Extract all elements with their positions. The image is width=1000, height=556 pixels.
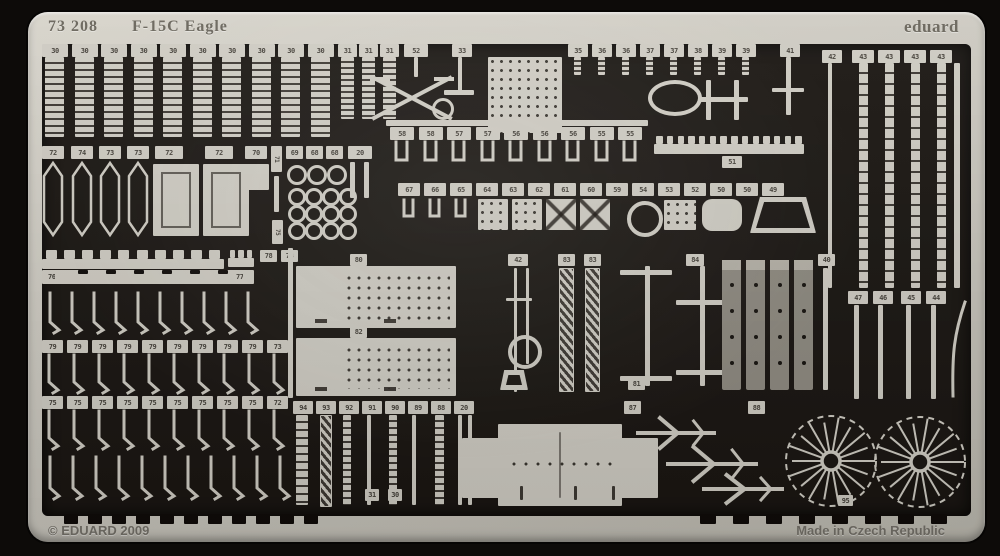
part-number-tab: 36: [592, 44, 612, 57]
ladder-strip-part: [45, 57, 64, 137]
comb-tooth: [46, 250, 57, 259]
frame-tab-stub: [88, 514, 102, 524]
hook-part: [92, 456, 107, 500]
pylon-hole: [802, 335, 806, 339]
strip-part: [364, 162, 369, 198]
part-number-tab: 44: [926, 291, 946, 304]
part-number-tab: 65: [450, 183, 472, 196]
panel-part: [702, 199, 742, 231]
ladder-strip-part: [574, 57, 581, 75]
part-number-tab: 40: [818, 254, 835, 266]
plate-rivet-dots: [344, 273, 450, 320]
strip-part: [854, 305, 859, 399]
part-number-tab: 30: [308, 44, 334, 57]
part-number-tab: 75: [167, 396, 188, 409]
part-number-tab: 57: [447, 127, 471, 140]
part-number-tab: 30: [42, 44, 68, 57]
hook-part: [69, 456, 84, 500]
hook-part: [120, 410, 135, 450]
hook-part: [115, 456, 130, 500]
part-number-tab: 39: [736, 44, 756, 57]
comb-tooth: [688, 136, 694, 144]
pylon-hole: [802, 361, 806, 365]
comb-tooth: [247, 250, 252, 258]
pylon-hole: [730, 335, 734, 339]
part-number-tab: 43: [852, 50, 874, 63]
panel-part: [243, 164, 269, 190]
strip-part: [414, 57, 418, 77]
part-number-tab: 37: [640, 44, 660, 57]
hook-part: [270, 354, 285, 394]
ring-part: [339, 205, 357, 223]
part-number-tab: 66: [424, 183, 446, 196]
part-number-tab: 74: [71, 146, 93, 159]
part-number-tab: 81: [628, 378, 645, 390]
part-number-tab: 52: [404, 44, 428, 57]
panel-part: [478, 199, 508, 230]
frame-tab-stub: [160, 514, 174, 524]
frame-tab-stub: [208, 514, 222, 524]
frame-tab-stub: [64, 514, 78, 524]
part-number-tab: 50: [710, 183, 732, 196]
hook-part: [195, 410, 210, 450]
part-number-tab: 58: [419, 127, 443, 140]
plate-etch-dots: [508, 461, 612, 467]
u-clip-part: [537, 141, 552, 163]
pylon-strip-part: [770, 260, 789, 390]
part-number-tab: 30: [219, 44, 245, 57]
hook-part: [222, 292, 237, 334]
part-number-tab: 75: [42, 396, 63, 409]
ring-part: [288, 222, 306, 240]
pylon-hole: [754, 283, 758, 287]
part-number-tab: 45: [901, 291, 921, 304]
pylon-hole: [778, 335, 782, 339]
strip-part: [444, 90, 474, 95]
comb-tooth: [774, 136, 780, 144]
fairing-part: [500, 370, 528, 390]
pylon-hole: [802, 283, 806, 287]
part-number-tab: 90: [385, 401, 405, 414]
zigzag-strip-part: [320, 415, 332, 507]
canopy-frame-part: [71, 162, 93, 236]
part-number-tab: 88: [748, 401, 765, 414]
hook-part: [184, 456, 199, 500]
comb-tooth: [209, 250, 220, 259]
part-number-tab: 79: [217, 340, 238, 353]
u-clip-part: [508, 141, 523, 163]
u-clip-part: [451, 141, 466, 163]
part-number-tab: 30: [160, 44, 186, 57]
comb-tooth: [753, 136, 759, 144]
part-number-tab: 36: [616, 44, 636, 57]
frame-tab-stub: [766, 514, 782, 524]
pylon-cap: [770, 260, 789, 270]
comb-tooth: [64, 250, 75, 259]
part-number-tab: 79: [242, 340, 263, 353]
frame-tab-stub: [78, 270, 88, 274]
hook-part: [90, 292, 105, 334]
comb-tooth: [763, 136, 769, 144]
strip-part: [676, 300, 728, 305]
ladder-strip-part: [193, 57, 212, 137]
part-number-tab: 79: [42, 340, 63, 353]
canopy-frame-part: [127, 162, 149, 236]
part-number-tab: 43: [878, 50, 900, 63]
part-number-tab: 31: [359, 44, 378, 57]
part-number-tab: 93: [316, 401, 336, 414]
ladder-strip-part: [911, 63, 920, 288]
plate-rivet-dots: [344, 345, 450, 389]
comb-bar-part: [42, 259, 224, 269]
ring-part: [322, 205, 340, 223]
ring-part: [322, 188, 340, 206]
hook-part: [207, 456, 222, 500]
ring-part: [305, 205, 323, 223]
ladder-strip-part: [598, 57, 605, 75]
part-number-tab: 72: [205, 146, 233, 159]
ladder-strip-part: [296, 415, 308, 505]
oval-ring-part: [648, 80, 702, 116]
plate-slot: [384, 319, 396, 323]
ladder-strip-part: [343, 415, 351, 505]
strip-part: [823, 268, 828, 390]
part-number-tab: 91: [362, 401, 382, 414]
part-number-tab: 75: [192, 396, 213, 409]
hook-part: [220, 410, 235, 450]
cover-plate-part: [296, 266, 456, 328]
hook-part: [45, 410, 60, 450]
ladder-strip-part: [163, 57, 182, 137]
part-number-tab: 60: [580, 183, 602, 196]
u-clip-part: [480, 141, 495, 163]
ladder-strip-part: [694, 57, 701, 75]
part-number-tab: 64: [476, 183, 498, 196]
part-number-tab: 83: [584, 254, 601, 266]
part-number-tab: 43: [904, 50, 926, 63]
canopy-frame-part: [99, 162, 121, 236]
part-number-tab: 58: [390, 127, 414, 140]
u-clip-part: [594, 141, 609, 163]
part-number-tab: 30: [249, 44, 275, 57]
part-number-tab: 46: [873, 291, 893, 304]
pylon-hole: [754, 335, 758, 339]
part-number-tab: 75: [92, 396, 113, 409]
ladder-strip-part: [75, 57, 94, 137]
part-number-tab: 63: [502, 183, 524, 196]
panel-part: [512, 199, 542, 230]
turbine-fan-part: [783, 413, 879, 509]
strip-part: [620, 270, 672, 275]
part-number-tab: 79: [67, 340, 88, 353]
hook-part: [95, 354, 110, 394]
u-clip-part: [454, 199, 467, 219]
part-number-tab: 73: [99, 146, 121, 159]
part-number-tab: 71: [271, 146, 282, 172]
part-number-tab: 79: [117, 340, 138, 353]
part-number-tab: 75: [242, 396, 263, 409]
frame-tab-stub: [256, 514, 270, 524]
strip-part: [412, 415, 416, 505]
ladder-strip-part: [718, 57, 725, 75]
aircraft-silhouette-part: [702, 474, 784, 504]
hook-part: [46, 292, 61, 334]
ladder-strip-part: [859, 63, 868, 288]
part-number-tab: 30: [388, 489, 402, 501]
comb-tooth: [230, 250, 235, 258]
strip-part: [458, 57, 462, 93]
ladder-strip-part: [435, 415, 444, 505]
strip-part: [676, 370, 728, 375]
hook-part: [253, 456, 268, 500]
part-number-tab: 92: [339, 401, 359, 414]
u-clip-part: [565, 141, 580, 163]
pylon-hole: [754, 361, 758, 365]
part-number-tab: 78: [260, 250, 277, 262]
turbine-fan-part: [872, 414, 968, 510]
part-number-tab: 73: [267, 340, 288, 353]
part-number-tab: 55: [590, 127, 614, 140]
comb-bar-part: [228, 258, 254, 267]
hook-part: [195, 354, 210, 394]
strip-part: [645, 266, 650, 386]
hook-part: [220, 354, 235, 394]
part-number-tab: 68: [306, 146, 323, 159]
ladder-strip-part: [134, 57, 153, 137]
comb-tooth: [82, 250, 93, 259]
ring-part: [627, 201, 663, 237]
ring-part: [339, 188, 357, 206]
pylon-hole: [778, 361, 782, 365]
hook-part: [230, 456, 245, 500]
ring-part: [288, 188, 306, 206]
part-number-tab: 30: [190, 44, 216, 57]
comb-tooth: [678, 136, 684, 144]
part-number-tab: 75: [117, 396, 138, 409]
pylon-hole: [802, 309, 806, 313]
comb-tooth: [720, 136, 726, 144]
part-number-tab: 20: [348, 146, 372, 159]
part-number-tab: 88: [431, 401, 451, 414]
hook-part: [95, 410, 110, 450]
ring-part: [339, 222, 357, 240]
frame-tab-stub: [304, 514, 318, 524]
hook-part: [161, 456, 176, 500]
comb-tooth: [731, 136, 737, 144]
ladder-strip-part: [646, 57, 653, 75]
comb-bar-part: [654, 144, 804, 154]
strip-part: [700, 266, 705, 386]
comb-tooth: [137, 250, 148, 259]
frame-tab-stub: [218, 270, 228, 274]
comb-tooth: [710, 136, 716, 144]
plate-slot: [612, 486, 615, 500]
frame-tab-stub: [184, 514, 198, 524]
hook-part: [120, 354, 135, 394]
frame-tab-stub: [134, 270, 144, 274]
hook-part: [134, 292, 149, 334]
strip-part: [698, 97, 748, 102]
part-number-tab: 35: [568, 44, 588, 57]
fairing-part: [750, 197, 816, 233]
frame-tab-stub: [931, 514, 947, 524]
hook-part: [244, 292, 259, 334]
plate-slot: [520, 486, 523, 500]
ring-part: [432, 98, 454, 120]
part-number-tab: 53: [658, 183, 680, 196]
pylon-hole: [730, 309, 734, 313]
pylon-hole: [730, 283, 734, 287]
u-clip-part: [394, 141, 409, 163]
part-number-tab: 47: [848, 291, 868, 304]
part-number-tab: 49: [762, 183, 784, 196]
part-number-tab: 87: [624, 401, 641, 414]
pylon-hole: [730, 361, 734, 365]
curved-blade-part: [946, 300, 970, 398]
ladder-strip-part: [104, 57, 123, 137]
etched-parts-layer: 3030303030303030303031313152333536363737…: [0, 0, 1000, 556]
panel-part: [664, 200, 696, 230]
part-number-tab: 30: [131, 44, 157, 57]
comb-tooth: [785, 136, 791, 144]
ring-part: [288, 205, 306, 223]
part-number-tab: 56: [561, 127, 585, 140]
part-number-tab: 56: [504, 127, 528, 140]
pylon-strip-part: [746, 260, 765, 390]
part-number-tab: 30: [72, 44, 98, 57]
part-number-tab: 72: [42, 146, 64, 159]
part-number-tab: 79: [92, 340, 113, 353]
hook-part: [245, 410, 260, 450]
hook-part: [170, 354, 185, 394]
cover-plate-part: [296, 338, 456, 396]
plate-slot: [384, 387, 396, 391]
fairing-inner: [506, 375, 522, 385]
ladder-strip-part: [742, 57, 749, 75]
part-number-tab: 79: [142, 340, 163, 353]
frame-tab-stub: [898, 514, 914, 524]
pylon-hole: [778, 283, 782, 287]
part-number-tab: 43: [930, 50, 952, 63]
part-number-tab: 70: [245, 146, 267, 159]
frame-tab-stub: [700, 514, 716, 524]
strip-part: [274, 176, 279, 212]
comb-tooth: [238, 250, 243, 258]
part-number-tab: 75: [272, 220, 283, 244]
part-number-tab: 56: [533, 127, 557, 140]
ring-part: [322, 222, 340, 240]
hook-part: [70, 410, 85, 450]
part-number-tab: 31: [338, 44, 357, 57]
panel-part: [546, 199, 576, 230]
ladder-strip-part: [622, 57, 629, 75]
hook-part: [70, 354, 85, 394]
ladder-strip-part: [281, 57, 300, 137]
frame-tab-stub: [232, 514, 246, 524]
hook-part: [145, 410, 160, 450]
ring-part: [305, 222, 323, 240]
hook-part: [170, 410, 185, 450]
plate-slot: [574, 486, 577, 500]
u-clip-part: [428, 199, 441, 219]
pylon-hole: [754, 309, 758, 313]
zigzag-strip-part: [585, 268, 600, 392]
part-number-tab: 95: [838, 495, 853, 506]
part-number-tab: 84: [686, 254, 704, 266]
part-number-etched: 77: [236, 273, 243, 281]
strip-part: [906, 305, 911, 399]
strip-part: [931, 305, 936, 399]
ring-part: [508, 335, 542, 369]
hook-part: [145, 354, 160, 394]
part-number-etched: 76: [48, 273, 55, 281]
comb-tooth: [699, 136, 705, 144]
plate-slot: [315, 387, 327, 391]
u-clip-part: [423, 141, 438, 163]
strip-part: [288, 248, 293, 398]
zigzag-strip-part: [559, 268, 574, 392]
part-number-tab: 75: [67, 396, 88, 409]
comb-tooth: [191, 250, 202, 259]
part-number-tab: 31: [365, 489, 379, 501]
strip-part: [772, 88, 804, 92]
comb-tooth: [795, 136, 801, 144]
part-number-tab: 30: [278, 44, 304, 57]
ring-part: [307, 165, 327, 185]
ladder-strip-part: [311, 57, 330, 137]
frame-tab-stub: [162, 270, 172, 274]
part-number-tab: 55: [618, 127, 642, 140]
part-number-tab: 61: [554, 183, 576, 196]
strip-part: [786, 57, 791, 115]
ladder-strip-part: [341, 57, 354, 119]
part-number-tab: 30: [101, 44, 127, 57]
part-number-tab: 39: [712, 44, 732, 57]
strip-part: [954, 63, 960, 288]
part-number-tab: 73: [127, 146, 149, 159]
hook-part: [245, 354, 260, 394]
u-clip-part: [402, 199, 415, 219]
hook-part: [156, 292, 171, 334]
part-number-tab: 67: [398, 183, 420, 196]
strip-part: [506, 298, 532, 301]
hook-part: [200, 292, 215, 334]
part-number-tab: 79: [192, 340, 213, 353]
frame-tab-stub: [106, 270, 116, 274]
comb-tooth: [118, 250, 129, 259]
part-number-tab: 68: [326, 146, 343, 159]
part-number-tab: 33: [452, 44, 472, 57]
comb-tooth: [173, 250, 184, 259]
ladder-strip-part: [222, 57, 241, 137]
hook-part: [138, 456, 153, 500]
comb-tooth: [155, 250, 166, 259]
ring-part: [305, 188, 323, 206]
base-plate-part: [462, 438, 500, 498]
part-number-tab: 51: [722, 156, 742, 168]
part-number-tab: 94: [293, 401, 313, 414]
panel-part: [580, 199, 610, 230]
part-number-tab: 82: [350, 326, 367, 338]
ring-part: [287, 165, 307, 185]
part-number-tab: 57: [476, 127, 500, 140]
hook-part: [276, 456, 291, 500]
ring-part: [327, 165, 347, 185]
frame-tab-stub: [136, 514, 150, 524]
hook-part: [112, 292, 127, 334]
frame-tab-stub: [865, 514, 881, 524]
part-number-tab: 80: [350, 254, 367, 266]
